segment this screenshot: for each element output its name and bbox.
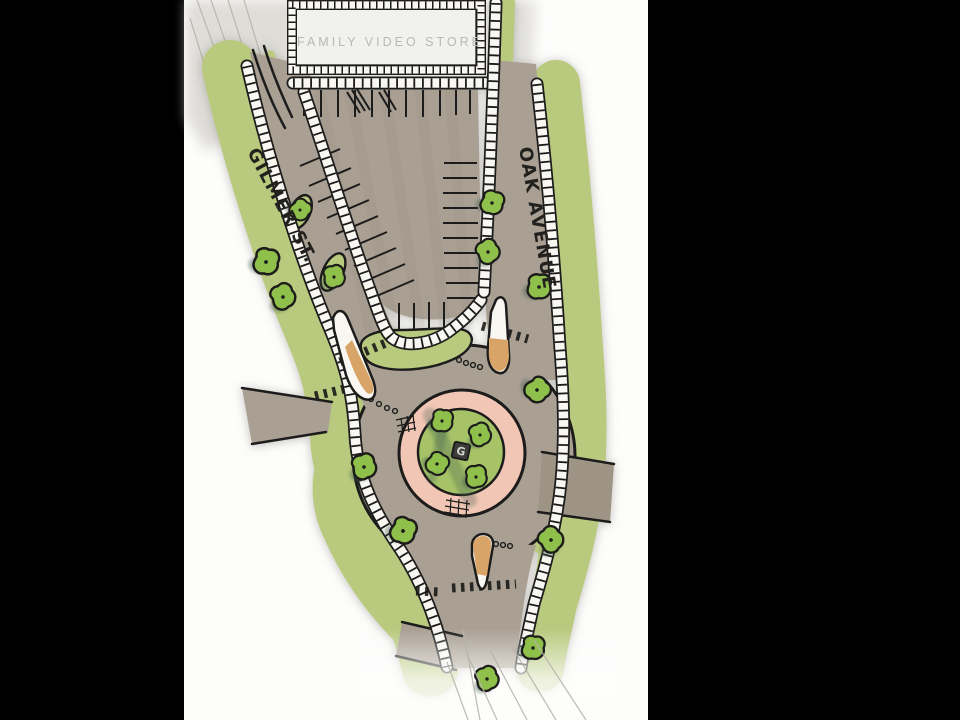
slide-right-bar <box>648 0 960 720</box>
slide: G FAMILY VIDEO STORE <box>0 0 960 720</box>
site-plan-figure: G FAMILY VIDEO STORE <box>0 0 960 720</box>
family-video-store-building: FAMILY VIDEO STORE <box>292 5 483 70</box>
slide-left-bar <box>0 0 184 720</box>
building-label: FAMILY VIDEO STORE <box>297 35 483 49</box>
center-monument-marker: G <box>452 442 471 461</box>
